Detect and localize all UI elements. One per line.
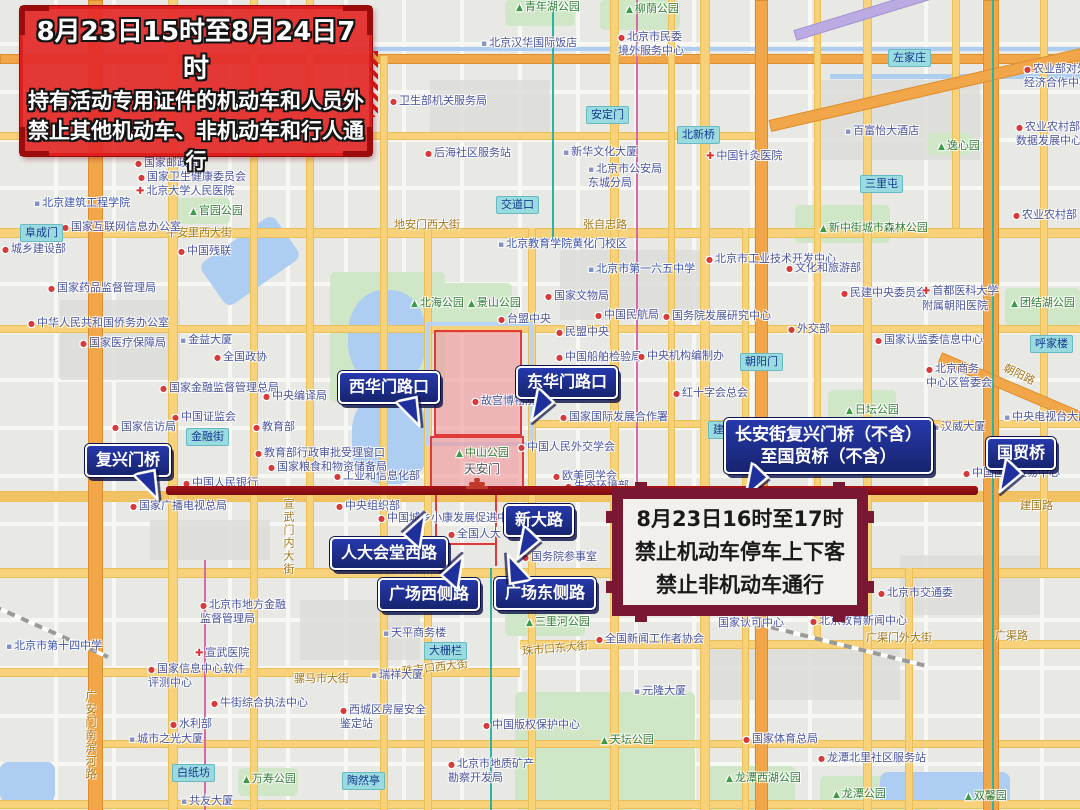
poi-text: 教育部行政审批受理窗口: [264, 446, 385, 459]
road-v: [668, 0, 675, 492]
dot-marker-icon: ●: [1016, 123, 1023, 132]
plaque-frame-tab: [833, 605, 845, 622]
poi-label: ●卫生部机关服务局: [390, 94, 487, 108]
poi-text: 国家粮食和物资储备局: [277, 460, 387, 473]
metro-station-badge: 陶然亭: [342, 772, 385, 790]
poi-label: ●教育部行政审批受理窗口: [255, 446, 385, 460]
school-marker-icon: ▪: [498, 240, 504, 250]
dot-marker-icon: ●: [518, 443, 525, 452]
poi-label: ▪元隆大厦: [634, 684, 686, 698]
plaque-frame-tab: [606, 511, 623, 523]
city-block: [430, 80, 550, 140]
beijing-traffic-map[interactable]: ●国家邮政局●国家卫生健康委员会✚北京大学人民医院▪北京建筑工程学院▲官园公园●…: [0, 0, 1080, 810]
poi-label: ▪北京市第一六五中学: [588, 262, 695, 276]
dot-marker-icon: ●: [498, 315, 505, 324]
dot-marker-icon: ●: [214, 353, 221, 362]
callout-square-east-road: 广场东侧路: [494, 577, 596, 610]
poi-label: ●城乡建设部: [2, 242, 66, 256]
callout-text: 长安街复兴门桥（不含）: [735, 424, 922, 446]
poi-label: ●台盟中央: [498, 312, 551, 326]
park-marker-icon: ▲: [516, 3, 523, 13]
hosp-marker-icon: ✚: [922, 286, 930, 297]
poi-label: ●国家金融监督管理总局: [160, 381, 279, 395]
poi-text: 中国残联: [187, 244, 231, 257]
bld-marker-icon: ▪: [481, 39, 487, 49]
poi-text: 水利部: [179, 717, 212, 730]
road-name-label: 骡马市大街: [294, 670, 349, 686]
road-name-label: 建国路: [1020, 497, 1053, 513]
poi-label: ▲中山公园: [456, 446, 509, 460]
callout-text: 复兴门桥: [96, 450, 160, 471]
poi-label: ▪北京建筑工程学院: [34, 196, 130, 210]
dot-marker-icon: ●: [148, 665, 155, 674]
poi-label: ●国家国际发展合作署: [560, 410, 668, 424]
poi-text: 农业农村部: [1022, 208, 1077, 221]
poi-label: ●全国政协: [214, 350, 267, 364]
park-marker-icon: ▲: [833, 790, 840, 800]
poi-text: 国务院发展研究中心: [672, 309, 771, 322]
poi-text: 北京市第一六五中学: [596, 262, 695, 275]
dot-marker-icon: ●: [200, 601, 207, 610]
callout-renda-west-road: 人大会堂西路: [330, 537, 448, 570]
poi-label: ●中央机构编制办: [638, 349, 724, 363]
poi-text: 中国城乡小康发展促进中心: [387, 511, 519, 524]
road-v: [700, 0, 710, 810]
dot-marker-icon: ●: [1013, 211, 1020, 220]
dot-marker-icon: ●: [130, 502, 137, 511]
park-marker-icon: ▲: [965, 792, 972, 802]
poi-text: 百富怡大酒店: [853, 124, 919, 137]
poi-label: ▲三里河公园: [526, 615, 590, 629]
poi-text: 北京市交通委: [887, 586, 953, 599]
poi-text: 北京大学人民医院: [146, 184, 234, 197]
dot-marker-icon: ●: [926, 365, 933, 374]
poi-label: ●国家医疗保障局: [80, 336, 166, 350]
poi-text: 金益大厦: [188, 333, 232, 346]
callout-text: 广场东侧路: [505, 583, 585, 604]
dot-marker-icon: ●: [28, 319, 35, 328]
dot-marker-icon: ●: [472, 397, 479, 406]
poi-text: 汉威大厦: [941, 420, 985, 433]
poi-text: 中央机构编制办: [647, 349, 724, 362]
road-name-label: 广渠路: [995, 627, 1028, 643]
dot-marker-icon: ●: [255, 449, 262, 458]
poi-text: 国家药品监督管理局: [57, 281, 156, 294]
poi-text: 经济合作中心: [1024, 76, 1080, 89]
road-h: [90, 740, 1080, 748]
dot-marker-icon: ●: [160, 384, 167, 393]
dot-marker-icon: ●: [253, 423, 260, 432]
poi-label: ▲新中街城市森林公园: [820, 221, 928, 235]
poi-label: ●北京市民委境外服务中心: [618, 30, 684, 58]
callout-text: 广场西侧路: [389, 584, 469, 605]
plaque-frame-tab: [857, 581, 874, 593]
poi-text: 新华文化大厦: [571, 145, 637, 158]
banner-hatch-ornament: [370, 51, 378, 117]
poi-label: ●国家药品监督管理局: [48, 281, 156, 295]
poi-text: 北京教育学院黄化门校区: [506, 237, 627, 250]
poi-label: ●牛街综合执法中心: [211, 696, 308, 710]
dot-marker-icon: ●: [62, 223, 69, 232]
dot-marker-icon: ●: [425, 149, 432, 158]
bld-marker-icon: ▪: [588, 165, 594, 175]
poi-label: ▲万寿公园: [243, 772, 296, 786]
poi-text: 北京市第十四中学: [14, 639, 102, 652]
callout-guomao-bridge: 国贸桥: [986, 437, 1056, 470]
poi-label: ▲龙潭公园: [833, 787, 886, 801]
poi-label: ▲逸心园: [938, 139, 980, 153]
tiantan-park-area: [515, 692, 695, 810]
school-marker-icon: ▪: [34, 199, 40, 209]
bld-marker-icon: ▪: [371, 671, 377, 681]
poi-text: 逸心园: [947, 139, 980, 152]
dot-marker-icon: ●: [170, 720, 177, 729]
dot-marker-icon: ●: [178, 247, 185, 256]
metro-station-badge: 大栅栏: [424, 642, 467, 660]
poi-text: 日坛公园: [855, 403, 899, 416]
poi-label: ●中国民航局: [595, 308, 659, 322]
bld-marker-icon: ▪: [181, 797, 187, 807]
dot-marker-icon: ●: [268, 463, 275, 472]
poi-label: ▲柳荫公园: [626, 2, 679, 16]
poi-label: 天安门: [464, 462, 500, 477]
poi-text: 评测中心: [148, 676, 192, 689]
poi-label: ▪汉威大厦: [933, 420, 985, 434]
park-marker-icon: ▲: [456, 449, 463, 459]
poi-label: ✚首都医科大学附属朝阳医院: [922, 284, 998, 312]
dot-marker-icon: ●: [596, 635, 603, 644]
poi-text: 北京商务: [935, 362, 979, 375]
plaque-frame-tab: [635, 482, 647, 499]
dot-marker-icon: ●: [448, 760, 455, 769]
park-marker-icon: ▲: [626, 5, 633, 15]
callout-text: 东华门路口: [527, 372, 607, 393]
poi-label: ▲青年湖公园: [516, 0, 580, 14]
dot-marker-icon: ●: [340, 706, 347, 715]
poi-text: 团结湖公园: [1020, 296, 1075, 309]
poi-text: 瑞祥大厦: [379, 668, 423, 681]
banner-corner-ornament: [343, 127, 372, 156]
poi-text: 勘察开发局: [448, 771, 503, 784]
poi-text: 全国政协: [223, 350, 267, 363]
poi-label: ▪城市之光大厦: [129, 732, 203, 746]
callout-square-west-road: 广场西侧路: [378, 578, 480, 611]
poi-label: ●全国新闻工作者协会: [596, 632, 704, 646]
poi-text: 新中街城市森林公园: [829, 221, 928, 234]
road-h: [0, 800, 1080, 809]
notice-no-bike-rule: 禁止非机动车通行: [623, 569, 857, 602]
poi-label: ●农业部对外经济合作中心: [1024, 62, 1080, 90]
park-marker-icon: ▲: [243, 775, 250, 785]
poi-label: ▲官园公园: [190, 204, 243, 218]
poi-label: ▪共友大厦: [181, 794, 233, 808]
metro-station-badge: 交道口: [496, 196, 539, 214]
poi-label: ●水利部: [170, 717, 212, 731]
poi-text: 青年湖公园: [525, 0, 580, 13]
metro-station-badge: 朝阳门: [740, 353, 783, 371]
poi-label: ●文化和旅游部: [786, 261, 861, 275]
poi-text: 城乡建设部: [11, 242, 66, 255]
poi-text: 外交部: [797, 322, 830, 335]
bld-marker-icon: ▪: [845, 127, 851, 137]
banner-corner-ornament: [343, 6, 372, 35]
road-v: [380, 56, 388, 810]
poi-label: ▲景山公园: [468, 296, 521, 310]
metro-station-badge: 左家庄: [888, 49, 931, 67]
park-marker-icon: ▲: [468, 299, 475, 309]
dot-marker-icon: ●: [1024, 65, 1031, 74]
metro-station-badge: 三里屯: [860, 175, 903, 193]
poi-label: ●国家信息中心软件评测中心: [148, 662, 245, 690]
dot-marker-icon: ●: [483, 721, 490, 730]
plaque-frame-tab: [606, 581, 623, 593]
poi-text: 双馨园: [974, 789, 1007, 802]
poi-text: 天平商务楼: [391, 626, 446, 639]
dot-marker-icon: ●: [80, 339, 87, 348]
metro-station-badge: 安定门: [586, 106, 629, 124]
poi-text: 全国新闻工作者协会: [605, 632, 704, 645]
callout-text: 人大会堂西路: [341, 543, 437, 564]
hosp-marker-icon: ✚: [195, 648, 203, 659]
dot-marker-icon: ●: [706, 255, 713, 264]
dot-marker-icon: ●: [263, 392, 270, 401]
banner-corner-ornament: [20, 127, 49, 156]
poi-label: ●中国证监会: [172, 410, 236, 424]
poi-text: 天坛公园: [610, 733, 654, 746]
dot-marker-icon: ●: [448, 530, 455, 539]
poi-text: 国家互联网信息办公室: [71, 220, 181, 233]
poi-text: 西城区房屋安全: [349, 703, 426, 716]
park-marker-icon: ▲: [190, 207, 197, 217]
poi-label: ▪天平商务楼: [383, 626, 446, 640]
poi-label: ●民建中央委员会: [841, 286, 927, 300]
poi-text: 北京市地方金融: [209, 598, 286, 611]
dot-marker-icon: ●: [878, 589, 885, 598]
plaque-frame-tab: [833, 482, 845, 499]
poi-label: ●北京市地质矿产勘察开发局: [448, 757, 534, 785]
poi-label: ●国家文物局: [545, 289, 609, 303]
poi-label: ●中国版权保护中心: [483, 718, 580, 732]
poi-text: 国家信访局: [121, 420, 176, 433]
poi-label: ●国家认监委信息中心: [875, 333, 983, 347]
dot-marker-icon: ●: [2, 245, 9, 254]
taoranting-lake: [0, 762, 55, 802]
park-marker-icon: ▲: [938, 142, 945, 152]
metro-station-badge: 金融街: [186, 428, 229, 446]
poi-label: ●国务院发展研究中心: [663, 309, 771, 323]
bld-marker-icon: ▪: [129, 735, 135, 745]
poi-text: 城市之光大厦: [137, 732, 203, 745]
poi-label: ●北京商务中心区管委会: [926, 362, 992, 390]
park-marker-icon: ▲: [1011, 299, 1018, 309]
callout-xihuamen-crossing: 西华门路口: [338, 371, 440, 404]
restricted-zone-forbidden-city: [434, 330, 522, 436]
poi-text: 中华人民共和国侨务办公室: [37, 316, 169, 329]
poi-text: 共友大厦: [189, 794, 233, 807]
poi-text: 中国民航局: [604, 308, 659, 321]
poi-text: 龙潭西湖公园: [735, 771, 801, 784]
poi-text: 文化和旅游部: [795, 261, 861, 274]
road-v: [952, 0, 960, 228]
road-name-label: 地安门西大街: [394, 216, 460, 232]
poi-label: ▪北京市第十四中学: [6, 639, 102, 653]
poi-label: ▲天坛公园: [601, 733, 654, 747]
park-marker-icon: ▲: [726, 774, 733, 784]
bld-marker-icon: ▪: [933, 423, 939, 433]
dot-marker-icon: ●: [810, 617, 817, 626]
poi-text: 国家认可中心: [718, 616, 784, 629]
dot-marker-icon: ●: [560, 413, 567, 422]
poi-text: 中国版权保护中心: [492, 718, 580, 731]
road-name-label: 广安门南滨河路: [82, 690, 98, 781]
dot-marker-icon: ●: [545, 292, 552, 301]
poi-text: 数据发展中心: [1016, 134, 1080, 147]
poi-label: ▪北京教育学院黄化门校区: [498, 237, 627, 251]
poi-label: ✚中国针灸医院: [706, 149, 782, 164]
poi-text: 北京汉华国际饭店: [489, 36, 577, 49]
dot-marker-icon: ●: [618, 33, 625, 42]
dot-marker-icon: ●: [211, 699, 218, 708]
poi-text: 中国针灸医院: [716, 149, 782, 162]
poi-label: ▪新华文化大厦: [563, 145, 637, 159]
poi-text: 国家国际发展合作署: [569, 410, 668, 423]
road-name-label: 宣武门内大街: [280, 498, 296, 576]
poi-label: ✚北京大学人民医院: [136, 184, 234, 199]
poi-label: ●北京市地方金融监督管理局: [200, 598, 286, 626]
poi-text: 万寿公园: [252, 772, 296, 785]
poi-label: ▪瑞祥大厦: [371, 668, 423, 682]
poi-text: 后海社区服务站: [434, 146, 511, 159]
poi-label: ●国家互联网信息办公室: [62, 220, 181, 234]
metro-line: [992, 0, 994, 810]
road-name-label: 张自忠路: [583, 216, 627, 232]
poi-text: 红十字会总会: [682, 386, 748, 399]
metro-station-badge: 白纸坊: [172, 764, 215, 782]
poi-text: 国家文物局: [554, 289, 609, 302]
dot-marker-icon: ●: [875, 336, 882, 345]
poi-label: ●农业农村部: [1013, 208, 1077, 222]
callout-text: 西华门路口: [349, 377, 429, 398]
dot-marker-icon: ●: [963, 469, 970, 478]
bld-marker-icon: ▪: [1004, 413, 1010, 423]
poi-label: ✚宣武医院: [195, 646, 249, 661]
poi-label: ▲龙潭西湖公园: [726, 771, 801, 785]
callout-text: 至国贸桥（不含）: [735, 446, 922, 468]
poi-label: ▪中央电视台大厦: [1004, 410, 1080, 424]
poi-label: ●国务院参事室: [522, 550, 597, 564]
poi-label: ●全国人大: [448, 527, 501, 541]
plaque-frame-tab: [857, 511, 874, 523]
callout-text: 国贸桥: [997, 443, 1045, 464]
poi-text: 景山公园: [477, 296, 521, 309]
poi-text: 三里河公园: [535, 615, 590, 628]
hosp-marker-icon: ✚: [136, 186, 144, 197]
poi-label: ●国家广播电视总局: [130, 499, 227, 513]
poi-label: ▪北京汉华国际饭店: [481, 36, 577, 50]
poi-label: ▪北京市公安局东城分局: [588, 162, 662, 190]
plaque-frame-tab: [635, 605, 647, 622]
dot-marker-icon: ●: [390, 97, 397, 106]
poi-label: ●后海社区服务站: [425, 146, 511, 160]
poi-text: 国务院参事室: [531, 550, 597, 563]
bld-marker-icon: ▪: [563, 148, 569, 158]
poi-text: 国家体育总局: [752, 732, 818, 745]
poi-text: 北京建筑工程学院: [42, 196, 130, 209]
callout-text: 新大路: [515, 510, 563, 531]
east-2nd-ring-road: [755, 0, 768, 810]
metro-station-badge: 呼家楼: [1030, 335, 1073, 353]
poi-label: ●国家体育总局: [743, 732, 818, 746]
dot-marker-icon: ●: [522, 553, 529, 562]
poi-text: 教育部: [262, 420, 295, 433]
banner-time-range: 8月23日15时至8月24日7时: [25, 11, 367, 85]
poi-text: 中心区管委会: [926, 376, 992, 389]
road-v: [905, 568, 913, 810]
dot-marker-icon: ●: [663, 312, 670, 321]
poi-text: 中央编译局: [272, 389, 327, 402]
poi-label: ●国家粮食和物资储备局: [268, 460, 387, 474]
bld-marker-icon: ▪: [383, 629, 389, 639]
poi-text: 龙潭公园: [842, 787, 886, 800]
city-block: [900, 555, 1040, 615]
poi-text: 国家认监委信息中心: [884, 333, 983, 346]
poi-text: 北海公园: [420, 296, 464, 309]
poi-text: 国家广播电视总局: [139, 499, 227, 512]
park-marker-icon: ▲: [846, 406, 853, 416]
dot-marker-icon: ●: [378, 514, 385, 523]
poi-text: 宣武医院: [205, 646, 249, 659]
poi-text: 北京市公安局: [596, 162, 662, 175]
poi-label: ●北京教育新闻中心: [810, 614, 907, 628]
dot-marker-icon: ●: [743, 735, 750, 744]
poi-text: 境外服务中心: [618, 44, 684, 57]
poi-text: 牛街综合执法中心: [220, 696, 308, 709]
road-name-label: 广渠门外大街: [866, 629, 932, 645]
poi-text: 农业部对外: [1033, 62, 1080, 75]
poi-text: 中山公园: [465, 446, 509, 459]
notice-no-stopping-rule: 禁止机动车停车上下客: [623, 536, 857, 569]
stopping-restriction-notice: 8月23日16时至17时 禁止机动车停车上下客 禁止非机动车通行: [612, 488, 868, 616]
poi-text: 中国人民外交学会: [527, 440, 615, 453]
poi-text: 柳荫公园: [635, 2, 679, 15]
park-marker-icon: ▲: [820, 224, 827, 234]
poi-text: 民建中央委员会: [850, 286, 927, 299]
restriction-banner: 8月23日15时至8月24日7时 持有活动专用证件的机动车和人员外 禁止其他机动…: [20, 6, 372, 156]
dot-marker-icon: ●: [553, 472, 560, 481]
poi-text: 国家信息中心软件: [157, 662, 245, 675]
tiananmen-gate-icon: [466, 477, 488, 490]
poi-text: 北京市地质矿产: [457, 757, 534, 770]
poi-text: 中国船舶检验局: [565, 350, 642, 363]
poi-text: 东城分局: [588, 176, 632, 189]
poi-text: 首都医科大学: [932, 284, 998, 297]
callout-fuxingmen-bridge: 复兴门桥: [85, 444, 171, 477]
poi-text: 北京市民委: [627, 30, 682, 43]
poi-text: 全国人大: [457, 527, 501, 540]
poi-label: ●红十字会总会: [673, 386, 748, 400]
poi-label: ●外交部: [788, 322, 830, 336]
dot-marker-icon: ●: [818, 754, 825, 763]
dot-marker-icon: ●: [556, 353, 563, 362]
hosp-marker-icon: ✚: [706, 151, 714, 162]
poi-label: ▲团结湖公园: [1011, 296, 1075, 310]
poi-label: ●中华人民共和国侨务办公室: [28, 316, 169, 330]
poi-text: 农业农村部大: [1025, 120, 1080, 133]
poi-text: 卫生部机关服务局: [399, 94, 487, 107]
poi-label: ●北京市交通委: [878, 586, 953, 600]
metro-station-badge: 阜成门: [20, 224, 63, 242]
poi-label: ●农业农村部大数据发展中心: [1016, 120, 1080, 148]
